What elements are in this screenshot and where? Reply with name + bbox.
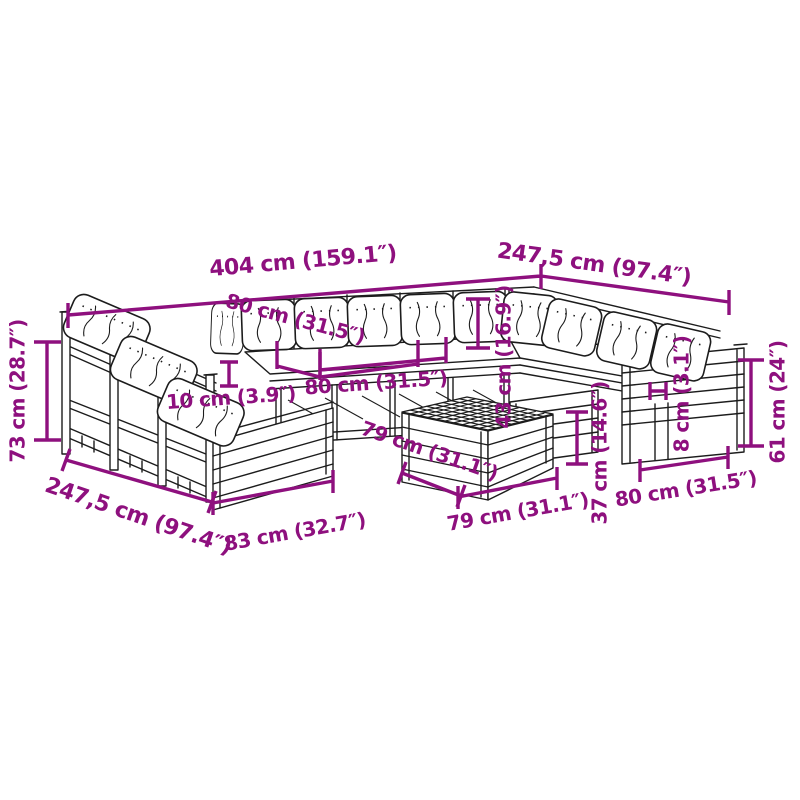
dimension-diagram: 404 cm (159.1″) 247,5 cm (97.4″) 80 cm (… xyxy=(0,0,800,800)
dim-label-side-panel-height: 61 cm (24″) xyxy=(766,341,790,464)
dim-label-backrest-height: 73 cm (28.7″) xyxy=(6,319,30,462)
dimension-annotations: 404 cm (159.1″) 247,5 cm (97.4″) 80 cm (… xyxy=(6,239,790,561)
dim-label-right-module-width: 80 cm (31.5″) xyxy=(613,465,758,511)
sofa-line-drawing xyxy=(60,287,747,510)
dim-label-seat-cushion-height: 43 cm (16.9″) xyxy=(492,285,516,428)
dim-label-total-width-back: 404 cm (159.1″) xyxy=(208,241,397,282)
dim-side-panel-height: 61 cm (24″) xyxy=(738,341,790,464)
dim-backrest-height: 73 cm (28.7″) xyxy=(6,319,62,462)
dim-label-table-height: 37 cm (14.6″) xyxy=(588,381,612,524)
dim-label-slat-gap: 8 cm (3.1″) xyxy=(670,336,694,453)
sofa-dimension-drawing: 404 cm (159.1″) 247,5 cm (97.4″) 80 cm (… xyxy=(0,0,800,800)
dim-label-front-module-width: 83 cm (32.7″) xyxy=(222,507,367,556)
